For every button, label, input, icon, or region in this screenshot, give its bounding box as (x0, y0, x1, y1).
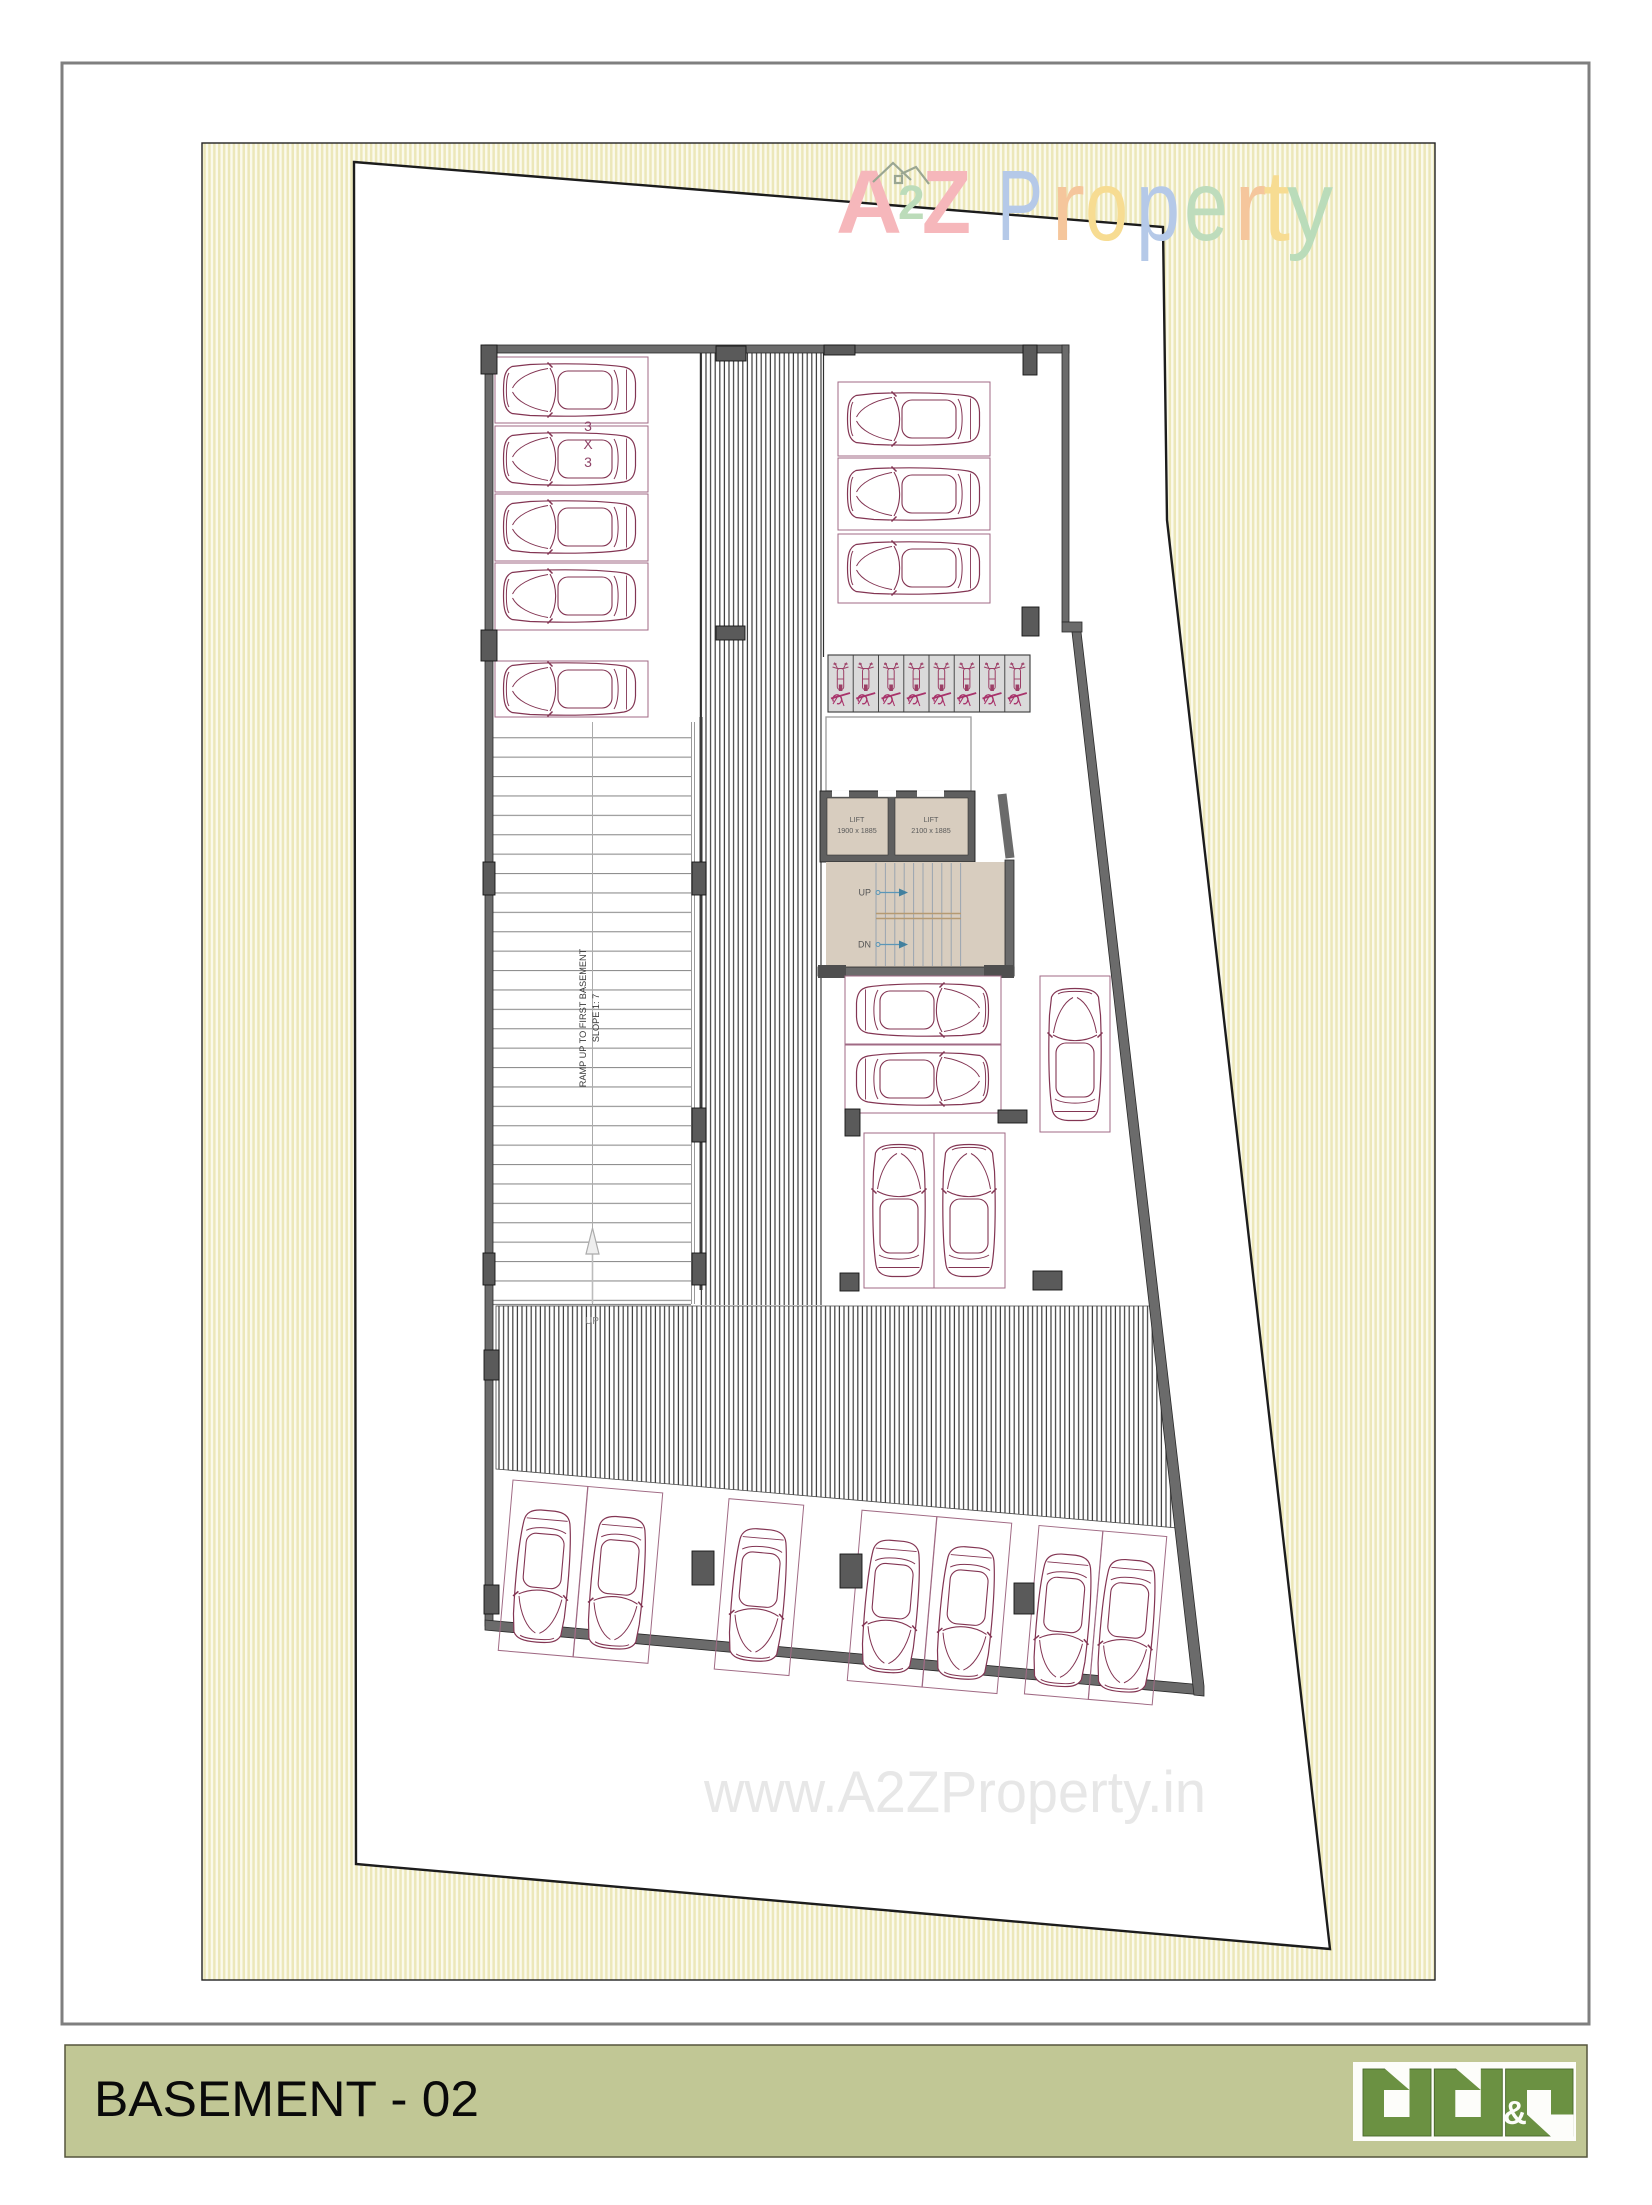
svg-text:1900 x 1885: 1900 x 1885 (837, 826, 877, 835)
svg-text:2: 2 (898, 177, 925, 230)
svg-text:BASEMENT - 02: BASEMENT - 02 (94, 2071, 479, 2127)
svg-text:P: P (997, 150, 1043, 262)
svg-text:2100 x 1885: 2100 x 1885 (911, 826, 951, 835)
svg-text:Z: Z (922, 153, 971, 253)
svg-text:3: 3 (584, 418, 592, 434)
svg-text:UP: UP (585, 1316, 599, 1327)
svg-text:r: r (1051, 150, 1085, 262)
svg-text:UP: UP (858, 888, 871, 898)
svg-text:p: p (1136, 150, 1180, 262)
svg-text:RAMP UP TO FIRST BASEMENT: RAMP UP TO FIRST BASEMENT (578, 948, 588, 1087)
svg-text:e: e (1184, 150, 1228, 262)
svg-text:SLOPE 1: 7: SLOPE 1: 7 (591, 994, 601, 1043)
svg-text:LIFT: LIFT (850, 815, 865, 824)
svg-text:A: A (836, 153, 902, 253)
svg-text:&: & (1503, 2094, 1527, 2131)
svg-text:o: o (1085, 150, 1128, 262)
svg-text:3: 3 (584, 454, 592, 470)
svg-text:LIFT: LIFT (924, 815, 939, 824)
svg-text:DN: DN (858, 940, 871, 950)
svg-text:y: y (1287, 150, 1333, 262)
svg-text:www.A2ZProperty.in: www.A2ZProperty.in (703, 1760, 1206, 1825)
svg-text:X: X (583, 436, 593, 452)
